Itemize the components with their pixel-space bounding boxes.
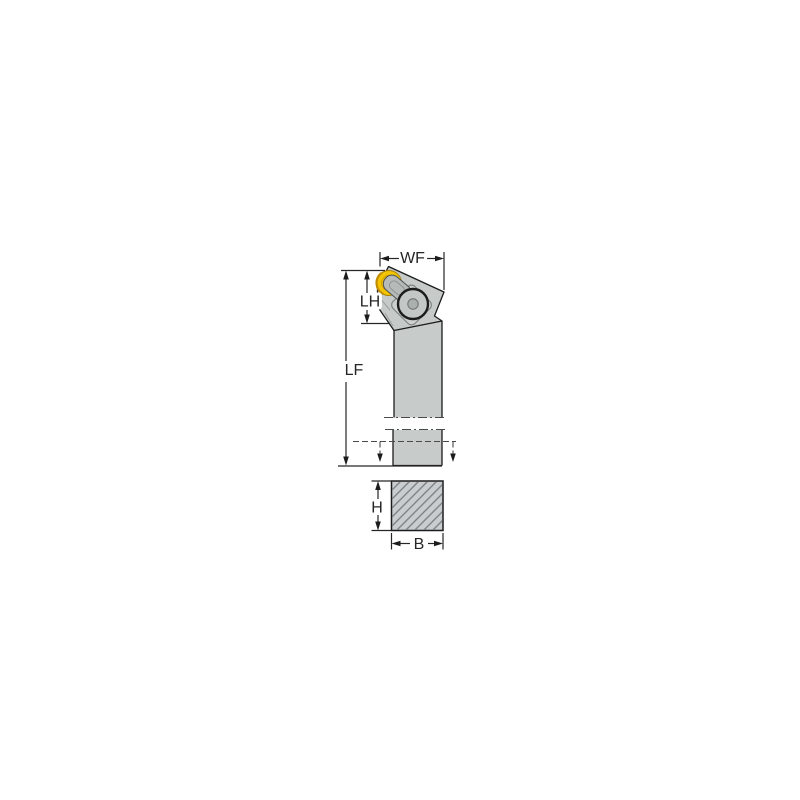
left-arrow-icon: [380, 256, 389, 262]
drawing-canvas: WF LH LF H B: [0, 0, 800, 800]
dim-label-lh: LH: [360, 294, 380, 311]
dimension-h: H: [371, 481, 391, 531]
shank-upper: [394, 321, 442, 418]
dim-label-wf: WF: [400, 250, 425, 267]
tool-holder-diagram: WF LH LF H B: [0, 0, 800, 800]
dim-label-b: B: [414, 536, 425, 553]
dim-label-h: H: [371, 500, 383, 517]
shank-lower: [393, 430, 442, 466]
dimension-b: B: [392, 533, 444, 553]
down-arrow-icon: [375, 522, 381, 531]
hatch-fill: [392, 482, 442, 530]
shank-break-lines: [384, 418, 448, 430]
up-arrow-icon: [364, 271, 370, 280]
down-arrow-icon: [364, 315, 370, 324]
dim-label-lf: LF: [345, 362, 364, 379]
down-arrow-icon: [343, 457, 349, 466]
down-arrow-icon: [377, 454, 383, 463]
right-arrow-icon: [434, 541, 443, 547]
tool-head: [377, 267, 445, 331]
up-arrow-icon: [343, 271, 349, 280]
shank-cross-section: [392, 481, 444, 531]
left-arrow-icon: [392, 541, 401, 547]
clamp-screw: [398, 289, 428, 319]
right-arrow-icon: [435, 256, 444, 262]
down-arrow-icon: [450, 454, 456, 463]
up-arrow-icon: [375, 481, 381, 490]
